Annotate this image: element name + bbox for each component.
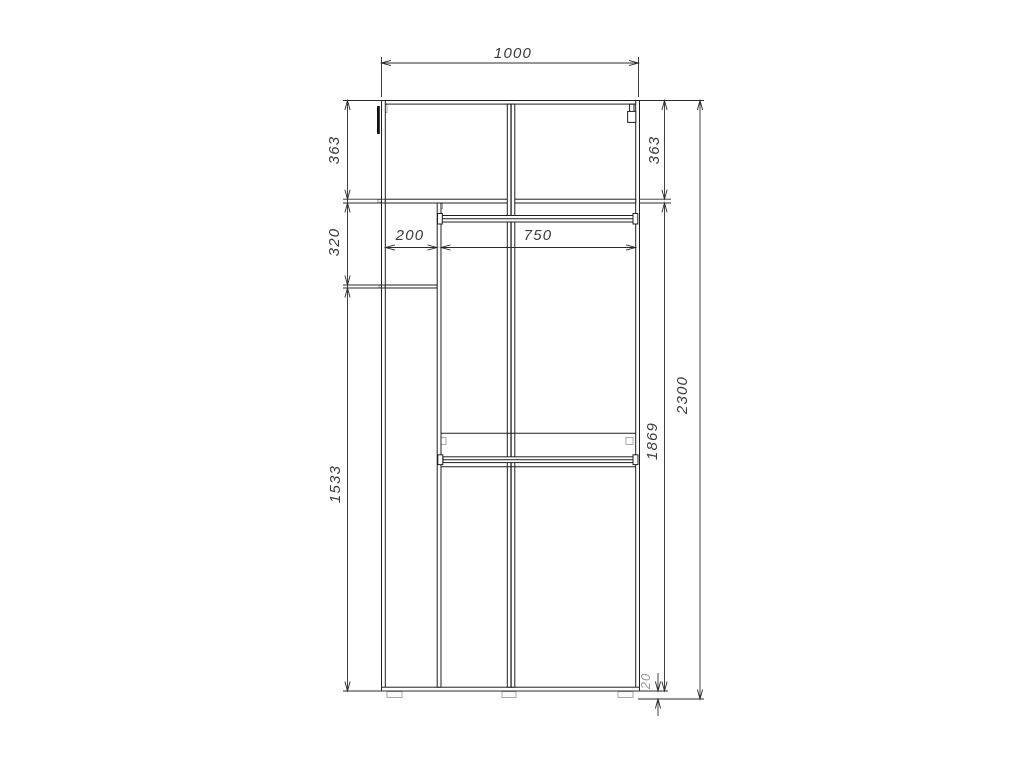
dim-label-left-lower-height: 1533 — [327, 465, 344, 503]
center-divider-right-leaf — [511, 104, 515, 687]
center-divider-left-leaf — [507, 104, 511, 687]
hanging-rail-upper — [438, 214, 638, 225]
right-side-panel — [636, 101, 640, 692]
dim-left-stack — [343, 101, 385, 692]
dim-label-left-niche-height: 320 — [326, 228, 343, 257]
drawing-canvas: 1000 363 320 1533 363 1869 2300 200 750 … — [0, 0, 1024, 768]
foot-right — [618, 692, 633, 698]
wardrobe-elevation-drawing: 1000 363 320 1533 363 1869 2300 200 750 … — [0, 0, 1024, 768]
dim-label-overall-width: 1000 — [494, 45, 532, 62]
dim-label-top-section-right: 363 — [646, 136, 663, 165]
dim-label-overall-height: 2300 — [674, 376, 691, 415]
small-left-shelf — [385, 285, 437, 288]
shelf-clip-right — [626, 438, 633, 445]
dim-interior-height — [662, 203, 667, 691]
dim-label-base-gap: 20 — [638, 673, 653, 690]
left-side-panel — [382, 101, 386, 692]
foot-left — [387, 692, 402, 698]
foot-center — [502, 692, 516, 698]
dim-overall-width — [382, 57, 639, 97]
dim-label-interior-height: 1869 — [644, 422, 661, 460]
lock-detail-top-right — [628, 104, 636, 122]
hanging-rail-lower — [438, 433, 638, 467]
cabinet-structure — [377, 101, 640, 692]
hinge-mark-top-left — [377, 106, 380, 134]
dim-base-gap — [655, 673, 660, 716]
dim-overall-height — [640, 101, 705, 700]
dim-label-top-section-left: 363 — [326, 136, 343, 165]
left-vertical-divider — [437, 203, 441, 687]
dim-label-left-niche-width: 200 — [395, 227, 425, 244]
bottom-panel — [382, 687, 640, 691]
top-panel — [382, 101, 640, 105]
dim-label-hanging-section-width: 750 — [524, 227, 553, 244]
